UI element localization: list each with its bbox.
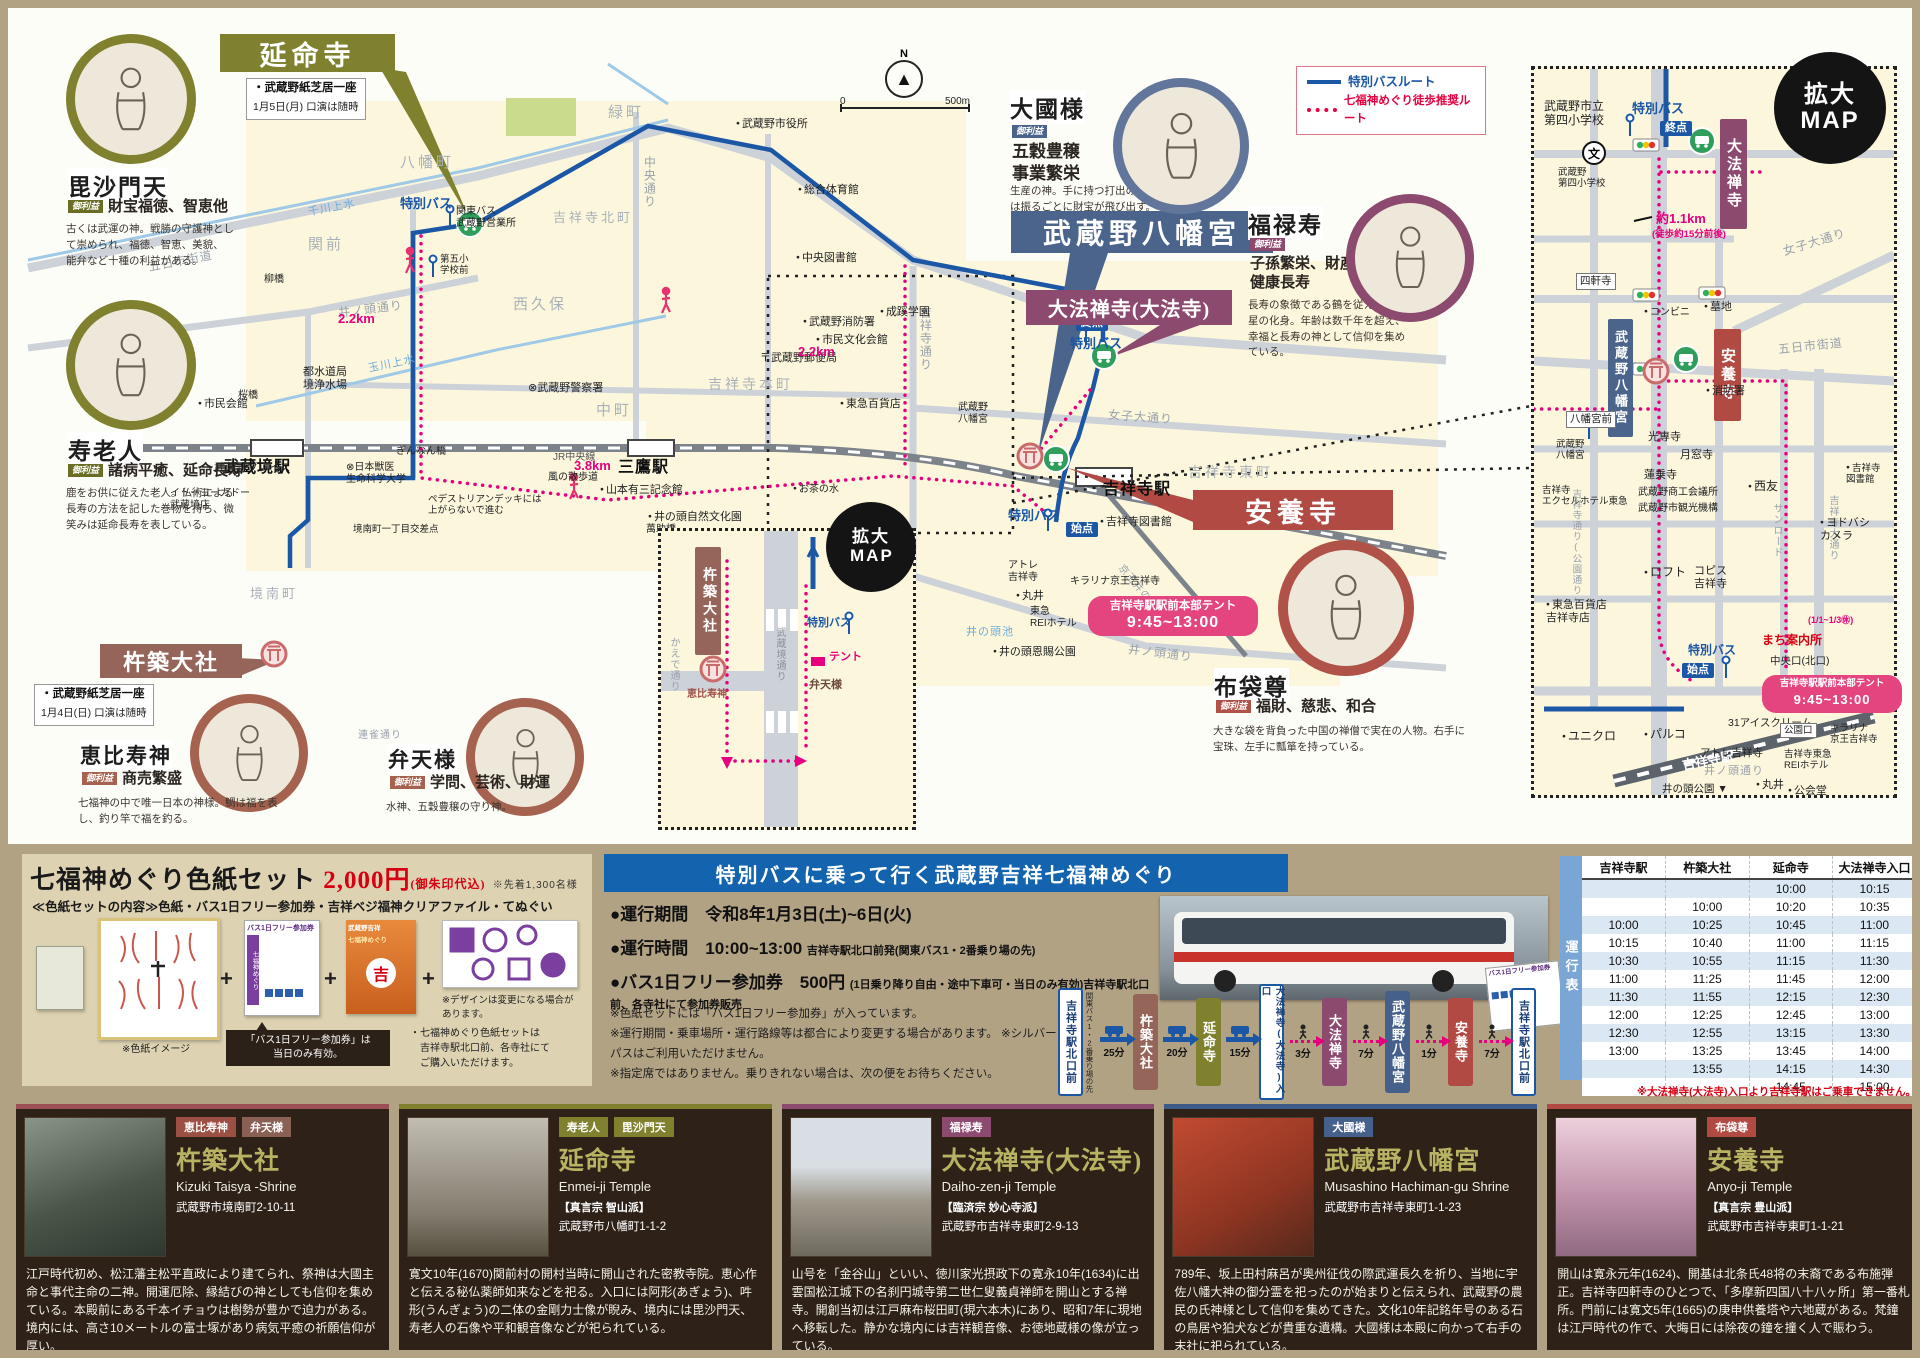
walker-icon xyxy=(1297,1024,1309,1040)
route-stop: 延命寺 xyxy=(1196,998,1221,1086)
walker-icon xyxy=(1486,1024,1498,1040)
deity-badges: 恵比寿神弁天様 xyxy=(176,1117,381,1141)
poi-label: 公会堂 xyxy=(1788,785,1827,798)
shikishi-card-image xyxy=(98,918,220,1040)
poi-label: 都水道局 境浄水場 xyxy=(303,366,347,392)
end-badge: 終点 xyxy=(1660,121,1692,136)
temple-romaji: Enmei-ji Temple xyxy=(559,1179,764,1194)
poi-label: 蓮乗寺 xyxy=(1644,469,1677,482)
poi-label: キラリナ京王吉祥寺 xyxy=(1070,576,1160,588)
timetable-header: 吉祥寺駅杵築大社 延命寺大法禅寺入口 xyxy=(1582,856,1916,879)
poi-label: 丸井 xyxy=(1016,590,1044,603)
info-center-label: まち案内所 xyxy=(1762,633,1822,647)
timetable-row: 12:0012:2512:4513:00 xyxy=(1582,1006,1916,1024)
temple-name: 大法禅寺(大法寺) xyxy=(942,1141,1147,1177)
special-bus-label: 特別バス xyxy=(807,617,851,630)
deity-benten-name: 弁天様 xyxy=(388,744,457,774)
road-label: 中央通り xyxy=(642,156,656,208)
station-tent-badge: 吉祥寺駅駅前本部テント9:45~13:00 xyxy=(1762,675,1902,713)
road-label: 女子大通り xyxy=(1781,226,1847,259)
deity-bishamonten-benefit: 御利益財宝福徳、智恵他 xyxy=(68,198,228,217)
temple-description: 開山は寛永元年(1624)、開基は北条氏48将の末裔である布施弾正。吉祥寺四軒寺… xyxy=(1557,1265,1910,1337)
deity-daikoku-benefit: 御利益五穀豊穣 事業繁栄 xyxy=(1012,120,1080,184)
road-label: 井ノ頭通り xyxy=(1127,642,1193,664)
bus-icon xyxy=(1104,1025,1124,1037)
area-label: 緑町 xyxy=(608,104,644,122)
route-leg: 1分 xyxy=(1410,1024,1448,1060)
area-label: 境南町 xyxy=(250,586,298,602)
temple-card: 福禄寿 大法禅寺(大法寺) Daiho-zen-ji Temple 【臨済宗 妙… xyxy=(782,1104,1155,1358)
deity-badge: 恵比寿神 xyxy=(176,1117,236,1137)
temple-description: 寛文10年(1670)関前村の開村当時に開山された密教寺院。恵心作と伝える秘仏薬… xyxy=(409,1265,762,1337)
deity-figure-icon xyxy=(100,63,162,136)
purchase-note: ・七福神めぐり色紙セットは 吉祥寺駅北口前、各寺社にて ご購入いただけます。 xyxy=(410,1026,550,1071)
deity-ebisu-illustration xyxy=(190,694,308,812)
bus-stop-label: 第五小 学校前 xyxy=(440,254,469,277)
timetable-row: 10:0010:15 xyxy=(1582,879,1916,898)
route-stop: 吉祥寺駅北口前 xyxy=(1058,988,1083,1096)
deity-hotei-illustration xyxy=(1278,540,1414,676)
route-leg: 25分 xyxy=(1095,1025,1133,1059)
deity-badge: 毘沙門天 xyxy=(614,1117,674,1137)
temple-romaji: Daiho-zen-ji Temple xyxy=(942,1179,1147,1194)
tent-label: テント xyxy=(829,651,862,664)
timetable-row: 10:1510:4011:0011:15 xyxy=(1582,934,1916,952)
enlarged-map: 武蔵野市立 第四小学校 文 武蔵野 第四小学校 特別バス 終点 大法禅寺 約1.… xyxy=(1531,66,1897,798)
start-badge: 始点 xyxy=(1682,663,1714,678)
temple-sect: 【真言宗 智山派】 xyxy=(559,1199,764,1215)
scale-bar: 0500m xyxy=(840,96,970,109)
route-leg: 15分 xyxy=(1221,1025,1259,1059)
plus-sign: + xyxy=(324,966,337,992)
timetable-row: 13:0013:2513:4514:00 xyxy=(1582,1042,1916,1060)
area-label: 吉祥寺東町 xyxy=(1188,464,1273,481)
temple-address: 武蔵野市吉祥寺東町2-9-13 xyxy=(942,1218,1147,1234)
deity-ebisu-benefit: 御利益商売繁盛 xyxy=(82,770,182,789)
poi-label: 柳橋 xyxy=(264,274,284,286)
deity-jurojin-name: 寿老人 xyxy=(68,432,143,466)
distance-label: (徒歩約15分前後) xyxy=(1652,229,1726,240)
route-stop: 武蔵野八幡宮 xyxy=(1385,991,1410,1093)
temple-address: 武蔵野市吉祥寺東町1-1-21 xyxy=(1707,1218,1912,1234)
area-label: 関前 xyxy=(308,236,344,254)
station-label: 吉祥寺駅 xyxy=(1103,480,1171,499)
deity-hotei-desc: 大きな袋を背負った中国の禅僧で実在の人物。右手に宝珠、左手に瓢箪を持っている。 xyxy=(1213,724,1465,756)
exit-label: 中央口(北口) xyxy=(1770,655,1830,668)
temple-photo xyxy=(407,1117,549,1257)
poi-label: アトレ吉祥寺 xyxy=(1700,747,1763,760)
area-label: 八幡町 xyxy=(400,154,454,172)
route-leg: 3分 xyxy=(1284,1024,1322,1060)
shikishi-price: 2,000円 xyxy=(323,867,410,894)
special-bus-label: 特別バス xyxy=(1008,508,1060,524)
temple-romaji: Kizuki Taisya -Shrine xyxy=(176,1179,381,1194)
road-label: かえで通り xyxy=(667,637,679,692)
area-label: 吉祥寺本町 xyxy=(708,376,793,393)
poi-label: 武蔵野市立 第四小学校 xyxy=(1544,99,1604,128)
special-bus-label: 特別バス xyxy=(1070,336,1122,352)
shikishi-title: 七福神めぐり色紙セット 2,000円(御朱印代込) ※先着1,300名様 xyxy=(30,860,578,896)
area-label: 西久保 xyxy=(513,296,567,314)
temple-name: 延命寺 xyxy=(559,1141,764,1177)
poi-label: 井の頭公園 ▼ xyxy=(1662,783,1728,796)
start-badge: 始点 xyxy=(1066,522,1098,537)
special-bus-label: 特別バス xyxy=(1632,101,1684,117)
route-leg: 7分 xyxy=(1473,1024,1511,1060)
deity-daikoku-name: 大國様 xyxy=(1010,90,1085,124)
legend: 特別バスルート 七福神めぐり徒歩推奨ルート xyxy=(1296,66,1486,135)
poi-label: 吉祥寺東急 REIホテル xyxy=(1784,749,1832,772)
deity-badge: 大國様 xyxy=(1324,1117,1373,1137)
area-label: 中町 xyxy=(596,402,632,420)
temple-name: 安養寺 xyxy=(1707,1141,1912,1177)
poi-label: ぎんなん橋 xyxy=(396,446,446,458)
road-label: 連雀通り xyxy=(358,730,402,742)
temple-sect: 【真言宗 豊山派】 xyxy=(1707,1199,1912,1215)
deity-badges: 福禄寿 xyxy=(942,1117,1147,1141)
temple-card: 大國様 武蔵野八幡宮 Musashino Hachiman-gu Shrine … xyxy=(1164,1104,1537,1358)
poi-label: ロフト xyxy=(1644,565,1686,579)
tenugui-image xyxy=(442,920,578,988)
poi-label: アトレ 吉祥寺 xyxy=(1008,560,1038,584)
stream-label: 玉川上水 xyxy=(367,353,417,376)
temple-photo xyxy=(24,1117,166,1257)
temple-card: 布袋尊 安養寺 Anyo-ji Temple 【真言宗 豊山派】 武蔵野市吉祥寺… xyxy=(1547,1104,1920,1358)
bus-stop-label: 武蔵野 八幡宮 xyxy=(1556,439,1585,462)
banner-daiho-vertical: 大法禅寺 xyxy=(1720,119,1747,229)
station-label: 三鷹駅 xyxy=(618,458,669,477)
poi-label: 井の頭自然文化園 xyxy=(648,511,742,524)
compass: N ▲ xyxy=(884,48,924,98)
poi-label: ⊗武蔵野警察署 xyxy=(528,382,603,395)
poi-label: 武蔵野商工会議所 xyxy=(1638,487,1718,499)
station-tent-badge: 吉祥寺駅駅前本部テント9:45~13:00 xyxy=(1088,596,1258,636)
exit-label: 公園口 xyxy=(1780,723,1817,738)
temple-name: 武蔵野八幡宮 xyxy=(1324,1141,1529,1177)
temple-cards: 恵比寿神弁天様 杵築大社 Kizuki Taisya -Shrine 武蔵野市境… xyxy=(16,1104,1920,1358)
timetable-row: 11:0011:2511:4512:00 xyxy=(1582,970,1916,988)
poi-label: お茶の水 xyxy=(793,484,839,496)
temple-photo xyxy=(790,1117,932,1257)
poi-label: 月窓寺 xyxy=(1680,449,1713,462)
poi-label: コピス 吉祥寺 xyxy=(1694,565,1727,591)
temple-description: 789年、坂上田村麻呂が奥州征伐の際武運長久を祈り、当地に宇佐八幡大神の御分霊を… xyxy=(1174,1265,1527,1355)
distance-label: 2.2km xyxy=(798,344,835,360)
deity-badge: 布袋尊 xyxy=(1707,1117,1756,1137)
poi-label: 井の頭池 xyxy=(966,626,1014,639)
distance-label: 3.8km xyxy=(574,458,611,474)
banner-anyo-vertical: 安養寺 xyxy=(1714,329,1741,421)
clearfile-image: 武蔵野吉祥 七福神めぐり 吉 xyxy=(346,920,416,1014)
note-label: 境南町一丁目交差点 xyxy=(353,524,439,535)
inset-map-title: 拡大MAP xyxy=(826,502,916,592)
deity-benten-desc: 水神、五穀豊穣の守り神。 xyxy=(386,800,584,816)
deity-ebisu-desc: 七福神の中で唯一日本の神様。鯛は福を表し、釣り竿で福を釣る。 xyxy=(78,796,286,828)
bus-icon xyxy=(1230,1025,1250,1037)
timetable-row: 12:3012:5513:1513:30 xyxy=(1582,1024,1916,1042)
road-label: 吉祥寺通り(公園通り) xyxy=(1570,489,1581,608)
bus-tour-banner: 特別バスに乗って行く武蔵野吉祥七福神めぐり xyxy=(604,854,1288,892)
special-bus-label: 特別バス xyxy=(1688,643,1736,657)
deity-badges: 大國様 xyxy=(1324,1117,1529,1141)
poi-label: 武蔵野 八幡宮 xyxy=(958,402,988,426)
temple-card: 恵比寿神弁天様 杵築大社 Kizuki Taisya -Shrine 武蔵野市境… xyxy=(16,1104,389,1358)
bus-route-swatch xyxy=(1307,80,1341,84)
poi-label: 吉祥寺図書館 xyxy=(1100,516,1172,529)
route-stop: 吉祥寺駅北口前 xyxy=(1511,988,1536,1096)
poi-label: 東急百貨店 xyxy=(840,398,901,411)
pilgrimage-map-poster: 八幡町 緑町 関前 西久保 吉祥寺北町 中町 吉祥寺本町 吉祥寺東町 境 境南町… xyxy=(0,0,1920,1358)
bus-note-line: ※色紙セットには「バス1日フリー参加券」が入っています。 xyxy=(610,1004,1062,1024)
bus-icon xyxy=(1167,1025,1187,1037)
shikishi-panel: 七福神めぐり色紙セット 2,000円(御朱印代込) ※先着1,300名様 ≪色紙… xyxy=(22,854,592,1086)
timetable-row: 10:3010:5511:1511:30 xyxy=(1582,952,1916,970)
temple-address: 武蔵野市境南町2-10-11 xyxy=(176,1199,381,1215)
deity-jurojin-benefit: 御利益諸病平癒、延命長寿 xyxy=(68,462,243,481)
bus-stop-label: 武蔵野 第四小学校 xyxy=(1558,167,1606,190)
poi-label: 丸井 xyxy=(1756,779,1784,792)
temple-address: 武蔵野市吉祥寺東町1-1-23 xyxy=(1324,1199,1529,1215)
poi-label: 風の散歩道 xyxy=(548,472,598,484)
stream-label: 千川上水 xyxy=(307,198,357,220)
deity-badge: 寿老人 xyxy=(559,1117,608,1137)
temple-photo xyxy=(1172,1117,1314,1257)
walker-icon xyxy=(1360,1024,1372,1040)
distance-label: 約1.1km xyxy=(1656,211,1706,227)
road-label: 五日市街道 xyxy=(1777,336,1843,357)
poi-label: 武蔵野消防署 xyxy=(803,316,875,329)
deity-ebisu-name: 恵比寿神 xyxy=(80,740,172,770)
deity-jurojin-desc: 鹿をお供に従えた老人。仏術による長寿の方法を記した巻物を持ち、微笑みは延命長寿を… xyxy=(66,486,234,533)
poi-label: ⊗日本獣医 生命科学大学 xyxy=(346,462,406,486)
distance-label: 2.2km xyxy=(338,311,375,327)
timetable-row: 13:5514:1514:30 xyxy=(1582,1060,1916,1078)
timetable-row: 10:0010:2010:35 xyxy=(1582,898,1916,916)
poi-label: 西友 xyxy=(1748,479,1778,493)
banner-kizuki-vertical: 杵築大社 xyxy=(695,547,721,655)
banner-daiho: 大法禅寺(大法寺) xyxy=(1026,290,1232,325)
deity-badge: 弁天様 xyxy=(242,1117,291,1137)
poi-label: 吉祥寺 エクセルホテル東急 xyxy=(1542,485,1628,508)
temple-address: 武蔵野市八幡町1-1-2 xyxy=(559,1218,764,1234)
poi-label: キラリナ 京王吉祥寺 xyxy=(1830,723,1878,746)
bus-note-line: ※運行期間・乗車場所・運行路線等は都合により変更する場合があります。 ※シルバー… xyxy=(610,1024,1062,1064)
route-stop: 大法禅寺 xyxy=(1322,998,1347,1086)
poi-label: 総合体育館 xyxy=(798,184,859,197)
shikishi-contents: ≪色紙セットの内容≫色紙・バス1日フリー参加券・吉祥ベジ福神クリアファイル・てぬ… xyxy=(32,896,553,915)
bus-notes: ※色紙セットには「バス1日フリー参加券」が入っています。※運行期間・乗車場所・運… xyxy=(610,1004,1062,1085)
deity-bishamonten-desc: 古くは武運の神。戦勝の守護神として崇められ、福徳、智恵、美貌、能弁など十種の利益… xyxy=(66,222,234,269)
school-icon: 文 xyxy=(1582,141,1606,165)
poi-label: 東急 REIホテル xyxy=(1030,606,1077,630)
plus-sign: + xyxy=(422,966,435,992)
poi-label: ユニクロ xyxy=(1562,729,1616,743)
banner-anyo: 安養寺 xyxy=(1193,490,1393,530)
timetable-row: 11:3011:5512:1512:30 xyxy=(1582,988,1916,1006)
deity-badges: 寿老人毘沙門天 xyxy=(559,1117,764,1141)
enlarged-map-title: 拡大MAP xyxy=(1774,52,1886,164)
design-note: ※デザインは変更になる場合が あります。 xyxy=(442,994,573,1023)
deity-benten-illustration xyxy=(466,698,584,816)
poi-label: 八幡宮前 xyxy=(1566,411,1616,428)
timetable-footnote: ※大法禅寺(大法寺)入口より吉祥寺駅はご乗車できません。 xyxy=(1478,1084,1916,1099)
special-bus-label: 特別バス xyxy=(400,196,452,212)
route-stop: 安養寺 xyxy=(1448,998,1473,1086)
poi-label: 山本有三記念館 xyxy=(600,484,683,497)
temple-sect: 【臨済宗 妙心寺派】 xyxy=(942,1199,1147,1215)
road-label: サンロード xyxy=(1770,503,1782,558)
poi-label: 武蔵野市観光機構 xyxy=(1638,503,1718,515)
poi-label: 光専寺 xyxy=(1648,431,1681,444)
deity-jurojin-illustration xyxy=(66,300,196,430)
poi-label: 井の頭恩賜公園 xyxy=(993,646,1076,659)
poi-label: 成蹊学園 xyxy=(880,306,930,319)
poi-label: 恵比寿神 xyxy=(687,689,727,701)
temple-romaji: Anyo-ji Temple xyxy=(1707,1179,1912,1194)
deity-badge: 福禄寿 xyxy=(942,1117,991,1137)
route-leg: 20分 xyxy=(1158,1025,1196,1059)
poi-label: ヨドバシ カメラ xyxy=(1820,517,1870,543)
road-label: 女子大通り xyxy=(1108,408,1174,427)
shikishi-image-caption: ※色紙イメージ xyxy=(122,1042,190,1057)
timetable-tab: 運行表 xyxy=(1560,856,1582,1080)
temple-name: 杵築大社 xyxy=(176,1141,381,1177)
temple-description: 江戸時代初め、松江藩主松平直政により建てられ、祭神は大國主命と事代主命の二神。開… xyxy=(26,1265,379,1355)
bus-note-line: ※指定席ではありません。乗りきれない場合は、次の便をお待ちください。 xyxy=(610,1064,1062,1084)
deity-bishamonten-illustration xyxy=(66,34,196,164)
bottom-band: 七福神めぐり色紙セット 2,000円(御朱印代込) ※先着1,300名様 ≪色紙… xyxy=(8,844,1920,1358)
route-stop: 杵築大社 xyxy=(1133,994,1158,1090)
road-label: 井ノ頭通り xyxy=(1704,765,1764,778)
poi-label: 消防署 xyxy=(1706,385,1745,398)
timetable-row: 10:0010:2510:4511:00 xyxy=(1582,916,1916,934)
deity-bishamonten-name: 毘沙門天 xyxy=(68,168,168,202)
route-diagram: 吉祥寺駅北口前 関東バス1・2番乗り場の先 25分 杵築大社 20分 延命寺 1… xyxy=(1058,984,1558,1100)
closed-dates-label: (1/1~1/3㊡) xyxy=(1808,615,1853,626)
note-enmeiji: ・武蔵野紙芝居一座1月5日(月) 口演は随時 xyxy=(246,78,366,120)
poi-label: コンビニ xyxy=(1644,307,1690,319)
poi-label: 中央図書館 xyxy=(796,252,857,265)
plus-sign: + xyxy=(220,966,233,992)
banner-enmeiji: 延命寺 xyxy=(220,34,395,72)
bus-illustration xyxy=(1174,912,1514,984)
bag-image xyxy=(36,946,84,1010)
ticket-validity-callout: 「バス1日フリー参加券」は 当日のみ有効。 xyxy=(226,1030,390,1066)
deity-daikoku-illustration xyxy=(1113,78,1249,214)
temple-card: 寿老人毘沙門天 延命寺 Enmei-ji Temple 【真言宗 智山派】 武蔵… xyxy=(399,1104,772,1358)
poi-label: 吉祥寺 図書館 xyxy=(1846,463,1880,486)
banner-hachimangu: 武蔵野八幡宮 xyxy=(1011,211,1273,253)
deity-fukuroku-illustration xyxy=(1346,194,1474,322)
temple-description: 山号を「金谷山」といい、徳川家光摂政下の寛永10年(1634)に出雲国松江城下の… xyxy=(792,1265,1145,1355)
ticket-image: バス1日フリー参加券 七福神めぐり xyxy=(244,920,320,1016)
poi-label: 四軒寺 xyxy=(1576,273,1616,290)
deity-hotei-benefit: 御利益福財、慈悲、和合 xyxy=(1216,698,1376,717)
deity-fukuroku-benefit: 御利益子孫繁栄、財産 健康長寿 xyxy=(1250,236,1355,292)
poi-label: 墓地 xyxy=(1704,301,1732,314)
timetable: 吉祥寺駅杵築大社 延命寺大法禅寺入口 10:0010:15 10:0010:20… xyxy=(1582,856,1916,1096)
poi-label: パルコ xyxy=(1644,727,1686,741)
poi-label: 弁天様 xyxy=(809,679,842,692)
poi-label: 東急百貨店 吉祥寺店 xyxy=(1546,599,1607,625)
temple-romaji: Musashino Hachiman-gu Shrine xyxy=(1324,1179,1529,1194)
route-stop: 大法禅寺(大法寺)入口 xyxy=(1259,984,1284,1100)
temple-photo xyxy=(1555,1117,1697,1257)
note-label: ペデストリアンデッキには 上がらないで進む xyxy=(428,494,542,517)
poi-label: 関東バス 武蔵野営業所 xyxy=(456,206,516,230)
road-label: 武蔵境通り xyxy=(773,627,785,682)
area-label: 吉祥寺北町 xyxy=(553,210,633,226)
deity-hotei-name: 布袋尊 xyxy=(1214,668,1289,702)
walk-route-swatch xyxy=(1307,108,1337,112)
deity-benten-benefit: 御利益学問、芸術、財運 xyxy=(390,774,550,793)
note-kizuki: ・武蔵野紙芝居一座1月4日(日) 口演は随時 xyxy=(34,684,154,726)
poi-label: 桜橋 xyxy=(238,390,258,402)
deity-fukuroku-name: 福禄寿 xyxy=(1248,206,1323,240)
walker-icon xyxy=(1423,1024,1435,1040)
banner-kizuki: 杵築大社 xyxy=(100,644,242,678)
route-leg: 7分 xyxy=(1347,1024,1385,1060)
route-stop-sub: 関東バス1・2番乗り場の先 xyxy=(1084,992,1095,1093)
poi-label: 武蔵野市役所 xyxy=(736,118,808,131)
deity-badges: 布袋尊 xyxy=(1707,1117,1912,1141)
